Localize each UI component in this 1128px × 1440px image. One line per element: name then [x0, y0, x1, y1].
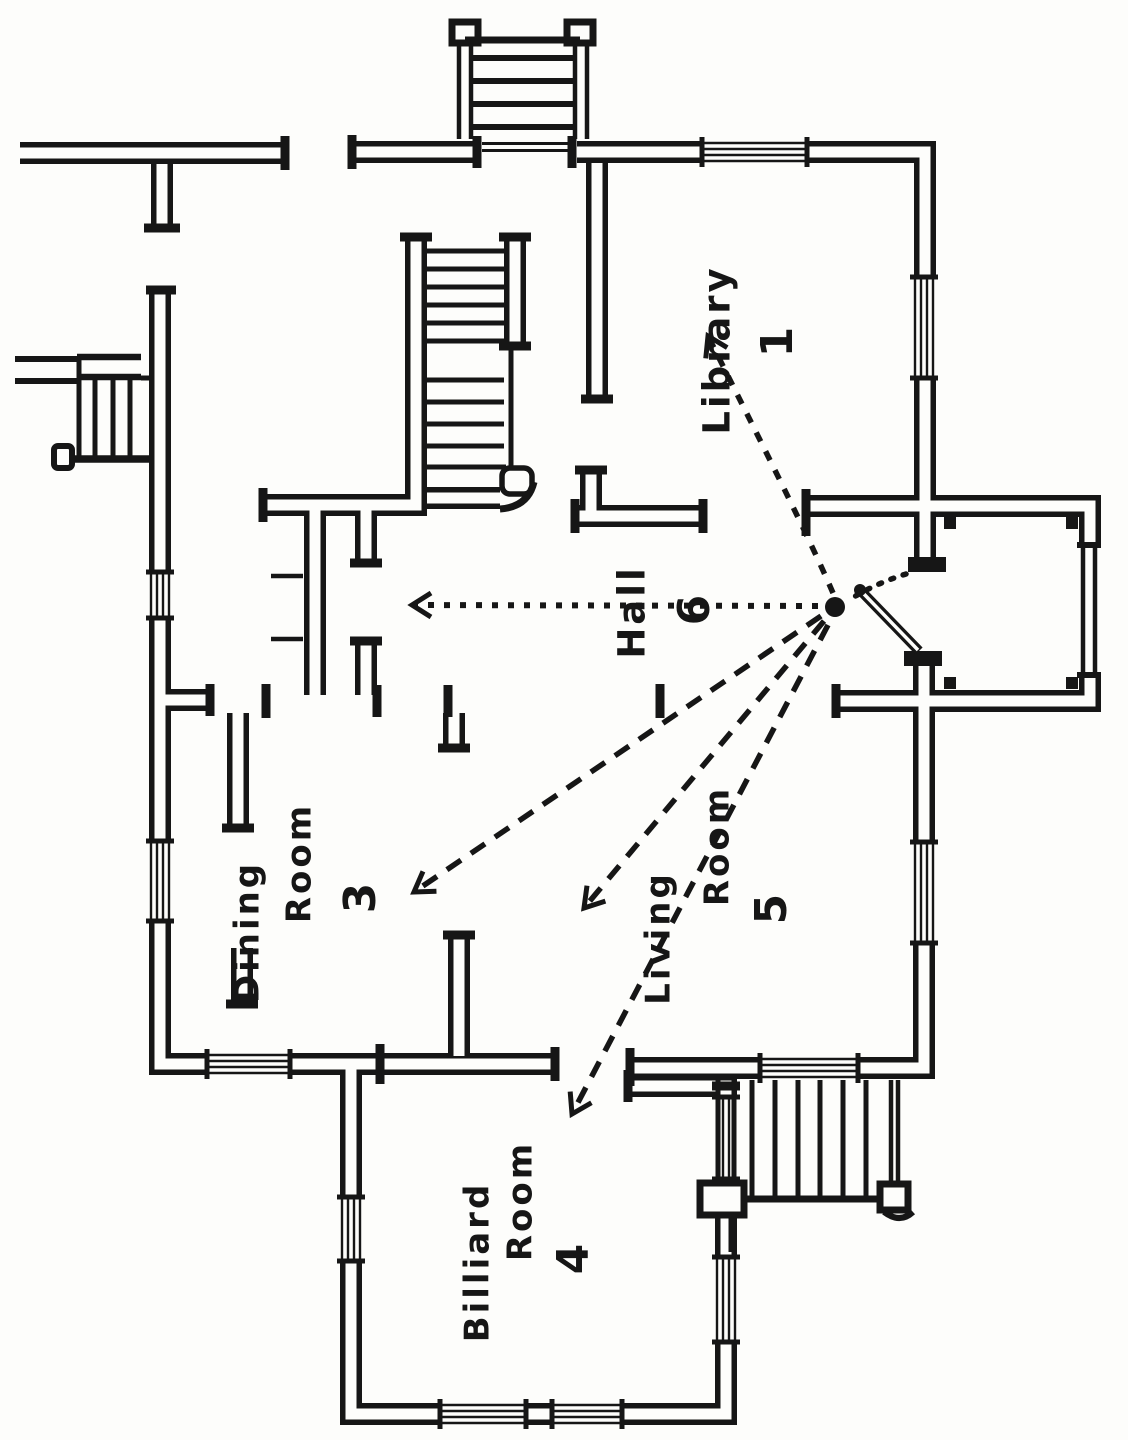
window-west-upper [146, 572, 174, 618]
window-living-east [910, 842, 938, 943]
closet-shelves [271, 576, 303, 639]
window-billiard-south-2 [552, 1399, 622, 1429]
floor-plan-drawing: Library 1 Hall 6 Dining Room 3 Living Ro… [0, 0, 1128, 1440]
room-label-living-1: Living [639, 871, 679, 1005]
porch-door-living-south [760, 1053, 858, 1083]
room-label-billiard-2: Room [501, 1141, 541, 1261]
floor-plan-page: Library 1 Hall 6 Dining Room 3 Living Ro… [0, 0, 1128, 1440]
north-porch-steps [452, 22, 593, 139]
room-number-library: 1 [752, 327, 803, 358]
window-library-east [910, 277, 938, 378]
room-number-dining: 3 [335, 883, 386, 914]
room-label-library: Library [696, 265, 739, 434]
window-billiard-east-lower [712, 1257, 740, 1342]
room-label-dining-1: Dining [228, 861, 268, 1003]
vestibule-jamb-south [904, 651, 942, 666]
room-number-living: 5 [746, 894, 797, 925]
windows [146, 137, 938, 1429]
window-billiard-south-1 [440, 1399, 526, 1429]
vestibule-pilasters [944, 517, 1078, 689]
door-leaf [854, 584, 919, 651]
entrance-vestibule [854, 517, 1102, 689]
room-label-dining-2: Room [280, 803, 320, 923]
room-label-hall: Hall [611, 565, 654, 658]
room-label-billiard-1: Billiard [458, 1182, 498, 1343]
fireplace-billiard [700, 1183, 744, 1215]
window-dining-south [207, 1049, 290, 1079]
room-label-living-2: Room [698, 786, 738, 906]
west-side-steps [15, 357, 153, 468]
entrance-origin-dot [825, 597, 845, 617]
room-number-billiard: 4 [548, 1244, 599, 1275]
front-door [1077, 545, 1102, 675]
vestibule-jamb-north [908, 557, 946, 572]
window-west-lower [146, 841, 174, 921]
window-library-north [702, 137, 807, 167]
window-billiard-west [337, 1197, 365, 1261]
room-number-hall: 6 [669, 595, 720, 626]
